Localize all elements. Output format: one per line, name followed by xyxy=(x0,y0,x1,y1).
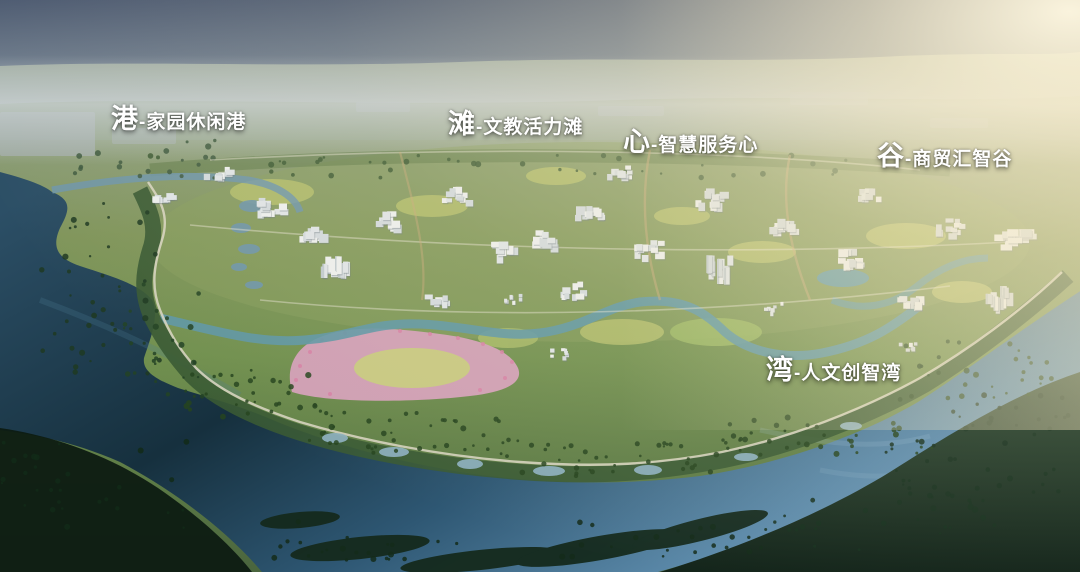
district-label-bay: 湾 -人文创智湾 xyxy=(766,357,901,384)
district-label-beach: 滩 -文教活力滩 xyxy=(448,111,583,138)
sun-glow xyxy=(0,0,1080,572)
district-label-heart: 心 -智慧服务心 xyxy=(623,129,758,156)
district-label-bay-text: -人文创智湾 xyxy=(794,364,901,383)
district-label-beach-text: -文教活力滩 xyxy=(476,118,583,137)
district-label-heart-text: -智慧服务心 xyxy=(651,136,758,155)
district-label-harbor: 港 -家园休闲港 xyxy=(111,106,246,133)
district-label-beach-char: 滩 xyxy=(448,111,476,138)
district-label-harbor-text: -家园休闲港 xyxy=(139,113,246,132)
district-label-harbor-char: 港 xyxy=(111,106,139,133)
district-label-heart-char: 心 xyxy=(623,129,651,156)
district-label-bay-char: 湾 xyxy=(766,357,794,384)
district-label-valley-text: -商贸汇智谷 xyxy=(905,150,1012,169)
aerial-masterplan-rendering: 港 -家园休闲港 滩 -文教活力滩 心 -智慧服务心 谷 -商贸汇智谷 湾 -人… xyxy=(0,0,1080,572)
district-label-valley: 谷 -商贸汇智谷 xyxy=(877,143,1012,170)
landscape-illustration xyxy=(0,0,1080,572)
district-label-valley-char: 谷 xyxy=(877,143,905,170)
